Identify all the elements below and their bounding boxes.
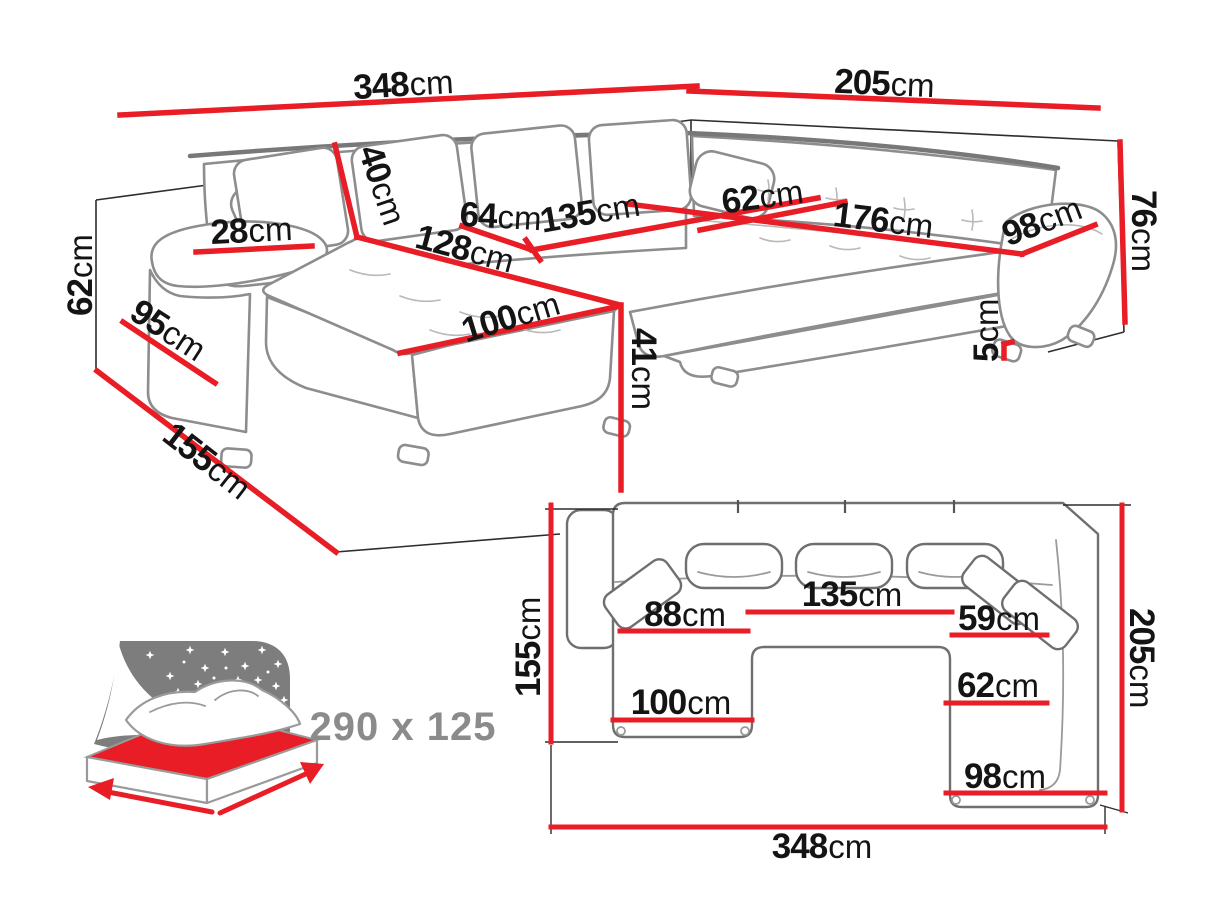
sofa-line-art: [148, 119, 1116, 468]
bed-size-label: 290 x 125: [310, 705, 497, 749]
sleep-function-icon: 290 x 125: [87, 641, 496, 813]
dim-label-right-width: 205cm: [833, 62, 935, 105]
plan-view: 155cm 88cm 135cm 59cm 62cm 100cm 98cm 20…: [509, 500, 1161, 866]
plan-label-chaise-inner-width: 88cm: [644, 595, 726, 634]
plan-label-right-seat-depth: 62cm: [957, 666, 1039, 705]
product-dimension-diagram: 348cm 205cm 62cm 40cm 28cm 95cm 155cm 64…: [0, 0, 1214, 910]
dim-label-total-width: 348cm: [352, 62, 455, 107]
plan-label-total-width: 348cm: [772, 827, 872, 866]
dim-label-armrest-width: 28cm: [209, 209, 293, 252]
dim-label-backrest-height: 62cm: [61, 234, 100, 316]
perspective-view: 348cm 205cm 62cm 40cm 28cm 95cm 155cm 64…: [61, 62, 1163, 552]
dim-label-seat-height: 41cm: [624, 328, 663, 410]
plan-label-right-seat-width: 59cm: [958, 599, 1040, 638]
dim-line-total-height: [1120, 142, 1125, 322]
plan-label-right-depth: 205cm: [1122, 608, 1161, 708]
plan-label-chaise-width: 100cm: [631, 683, 731, 722]
plan-label-left-depth: 155cm: [509, 597, 548, 697]
dim-label-leg-height: 5cm: [967, 299, 1006, 362]
dimension-diagram-page: 348cm 205cm 62cm 40cm 28cm 95cm 155cm 64…: [0, 0, 1214, 910]
plan-label-middle-width: 135cm: [802, 575, 902, 614]
plan-label-corner-width: 98cm: [964, 757, 1046, 796]
dim-label-total-height: 76cm: [1124, 190, 1163, 272]
